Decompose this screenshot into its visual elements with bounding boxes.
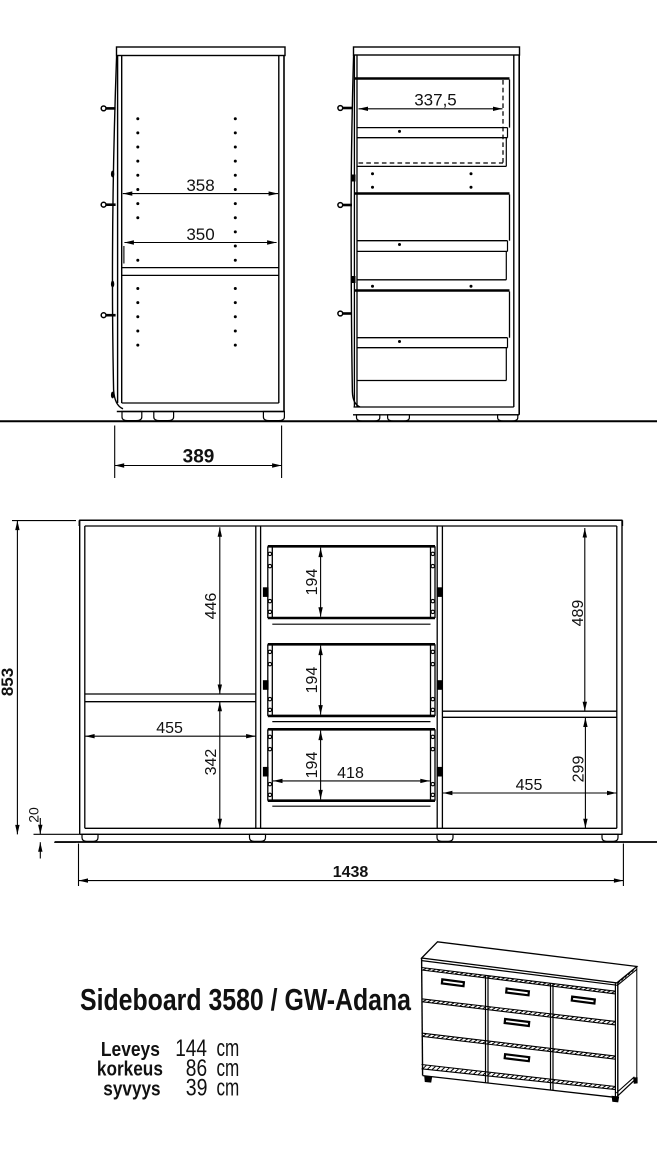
svg-text:194: 194 bbox=[304, 752, 321, 779]
svg-text:337,5: 337,5 bbox=[414, 90, 457, 109]
svg-text:389: 389 bbox=[183, 447, 215, 468]
svg-text:299: 299 bbox=[570, 756, 587, 783]
svg-text:489: 489 bbox=[570, 600, 587, 627]
svg-text:20: 20 bbox=[26, 807, 42, 823]
svg-text:194: 194 bbox=[304, 569, 321, 596]
svg-text:syvyys: syvyys bbox=[103, 1078, 160, 1100]
svg-text:1438: 1438 bbox=[333, 864, 369, 881]
svg-text:418: 418 bbox=[337, 765, 364, 782]
svg-text:Sideboard 3580 / GW-Adana: Sideboard 3580 / GW-Adana bbox=[80, 983, 412, 1017]
svg-text:39: 39 bbox=[186, 1075, 208, 1102]
svg-text:853: 853 bbox=[0, 668, 17, 696]
svg-text:455: 455 bbox=[516, 777, 543, 794]
svg-text:358: 358 bbox=[186, 176, 214, 195]
svg-text:350: 350 bbox=[186, 225, 214, 244]
svg-text:194: 194 bbox=[304, 667, 321, 694]
svg-text:cm: cm bbox=[217, 1075, 240, 1102]
svg-text:342: 342 bbox=[203, 749, 220, 776]
svg-text:korkeus: korkeus bbox=[97, 1059, 163, 1081]
svg-text:446: 446 bbox=[203, 593, 220, 620]
svg-text:455: 455 bbox=[156, 720, 183, 737]
